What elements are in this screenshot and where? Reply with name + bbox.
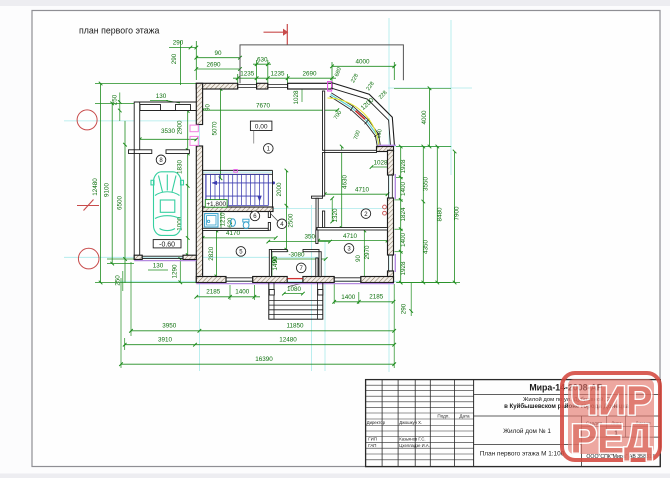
svg-text:0,00: 0,00: [255, 123, 268, 130]
svg-text:130: 130: [153, 263, 164, 270]
svg-text:Подп.: Подп.: [437, 413, 449, 418]
svg-text:Казьянов Г.С.: Казьянов Г.С.: [399, 437, 425, 442]
svg-text:3950: 3950: [162, 323, 177, 330]
svg-text:2500: 2500: [287, 213, 294, 228]
svg-text:1290: 1290: [172, 264, 179, 279]
svg-text:630: 630: [257, 57, 268, 64]
svg-text:16390: 16390: [255, 356, 273, 363]
svg-text:Директор: Директор: [367, 420, 386, 425]
svg-text:90: 90: [273, 256, 279, 263]
svg-text:-3080: -3080: [288, 251, 305, 258]
svg-text:2185: 2185: [206, 289, 221, 296]
svg-text:ГАП: ГАП: [368, 443, 376, 448]
svg-text:2690: 2690: [206, 62, 221, 69]
svg-text:7900: 7900: [454, 206, 461, 221]
svg-text:3530: 3530: [161, 128, 176, 135]
svg-text:90: 90: [214, 50, 222, 57]
svg-text:290: 290: [171, 53, 178, 64]
svg-text:290: 290: [400, 303, 407, 314]
svg-text:6500: 6500: [117, 196, 124, 211]
svg-text:4630: 4630: [341, 175, 348, 190]
svg-text:1830: 1830: [176, 160, 183, 175]
svg-text:план первого этажа: план первого этажа: [79, 26, 159, 36]
svg-text:Джошкун Х.: Джошкун Х.: [399, 420, 422, 425]
svg-text:1824: 1824: [400, 207, 407, 222]
svg-text:7670: 7670: [256, 102, 271, 109]
svg-text:1235: 1235: [240, 71, 255, 78]
svg-text:2900: 2900: [177, 120, 184, 135]
svg-text:1235: 1235: [270, 71, 285, 78]
svg-text:130: 130: [156, 93, 167, 100]
svg-text:1400: 1400: [400, 182, 407, 197]
svg-text:12480: 12480: [92, 178, 99, 196]
svg-text:4170: 4170: [226, 230, 241, 237]
svg-text:4350: 4350: [422, 240, 429, 255]
svg-text:11850: 11850: [286, 323, 304, 330]
svg-text:РЕД: РЕД: [571, 416, 653, 462]
svg-text:3910: 3910: [158, 337, 173, 344]
svg-text:+1,800: +1,800: [206, 201, 226, 208]
svg-text:250: 250: [114, 275, 121, 286]
svg-text:Жилой дом № 1: Жилой дом № 1: [503, 427, 551, 435]
svg-text:9100: 9100: [104, 183, 111, 198]
svg-text:1928: 1928: [400, 261, 407, 276]
svg-text:План первого этажа М 1:100: План первого этажа М 1:100: [480, 451, 565, 458]
svg-text:-0.60: -0.60: [159, 241, 175, 248]
svg-text:2970: 2970: [364, 245, 371, 260]
svg-text:290: 290: [173, 40, 184, 47]
svg-text:4000: 4000: [355, 59, 370, 66]
svg-text:2000: 2000: [276, 182, 283, 197]
svg-text:4710: 4710: [355, 186, 370, 193]
svg-text:1928: 1928: [400, 159, 407, 174]
svg-text:1080: 1080: [287, 286, 302, 293]
svg-text:2820: 2820: [208, 246, 215, 261]
svg-text:90: 90: [206, 104, 212, 111]
svg-text:8480: 8480: [436, 207, 443, 222]
svg-text:90: 90: [356, 255, 362, 262]
svg-text:ГИП: ГИП: [368, 437, 377, 442]
svg-text:2690: 2690: [302, 71, 317, 78]
svg-text:5070: 5070: [212, 121, 219, 136]
svg-text:1210: 1210: [220, 212, 227, 227]
svg-text:1000: 1000: [176, 216, 183, 231]
svg-text:1028: 1028: [293, 90, 300, 105]
svg-text:4000: 4000: [421, 110, 428, 125]
svg-text:Дата: Дата: [459, 413, 470, 418]
svg-text:Цхелладзе И.А.: Цхелладзе И.А.: [399, 443, 430, 448]
svg-text:1400: 1400: [235, 289, 250, 296]
svg-text:3550: 3550: [422, 177, 429, 192]
svg-text:1320: 1320: [332, 208, 339, 223]
svg-text:1400: 1400: [341, 294, 356, 301]
svg-text:12480: 12480: [279, 337, 297, 344]
svg-text:1400: 1400: [400, 233, 407, 248]
svg-text:1028: 1028: [373, 159, 388, 166]
svg-text:2185: 2185: [369, 294, 384, 301]
svg-text:4710: 4710: [343, 233, 358, 240]
